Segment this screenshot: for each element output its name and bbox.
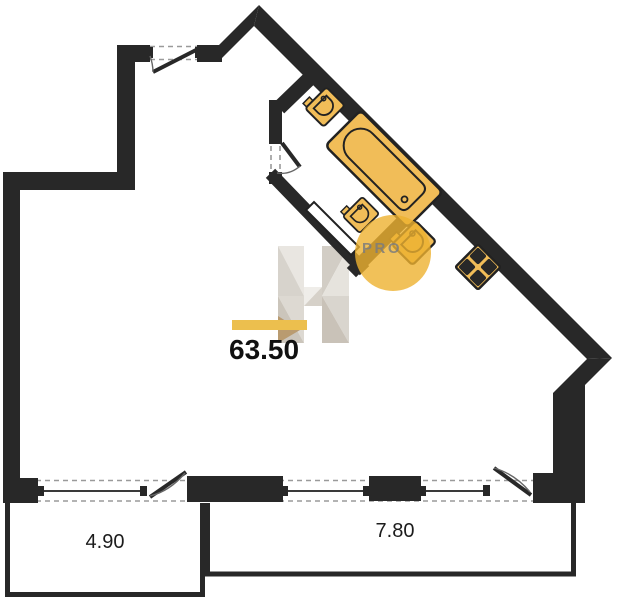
window-jamb: [421, 486, 426, 496]
left-upper-wall: [117, 45, 135, 190]
right-balcony-dimension: 7.80: [376, 520, 415, 542]
floor-plan-canvas: PRO 63.50 4.90 7.80: [0, 0, 622, 600]
floor-plan-svg: PRO 63.50 4.90 7.80: [0, 0, 622, 600]
watermark-pro-text: PRO: [362, 240, 402, 257]
window-jamb: [363, 486, 369, 496]
window-jamb: [283, 486, 288, 496]
bottom-right-corner-wall: [533, 473, 585, 503]
left-balcony-dimension: 4.90: [86, 531, 125, 553]
bottom-left-corner-wall: [3, 478, 38, 503]
window-jamb: [483, 485, 490, 496]
window-jamb: [36, 486, 44, 496]
bottom-pier-1: [187, 476, 283, 502]
left-step-wall: [3, 172, 135, 190]
area-highlight-bar: [232, 320, 307, 330]
window-jamb: [140, 486, 147, 496]
bottom-pier-2: [369, 476, 421, 501]
bathroom-door-wall: [269, 100, 282, 144]
total-area-label: 63.50: [229, 334, 299, 365]
left-wall: [3, 172, 20, 503]
